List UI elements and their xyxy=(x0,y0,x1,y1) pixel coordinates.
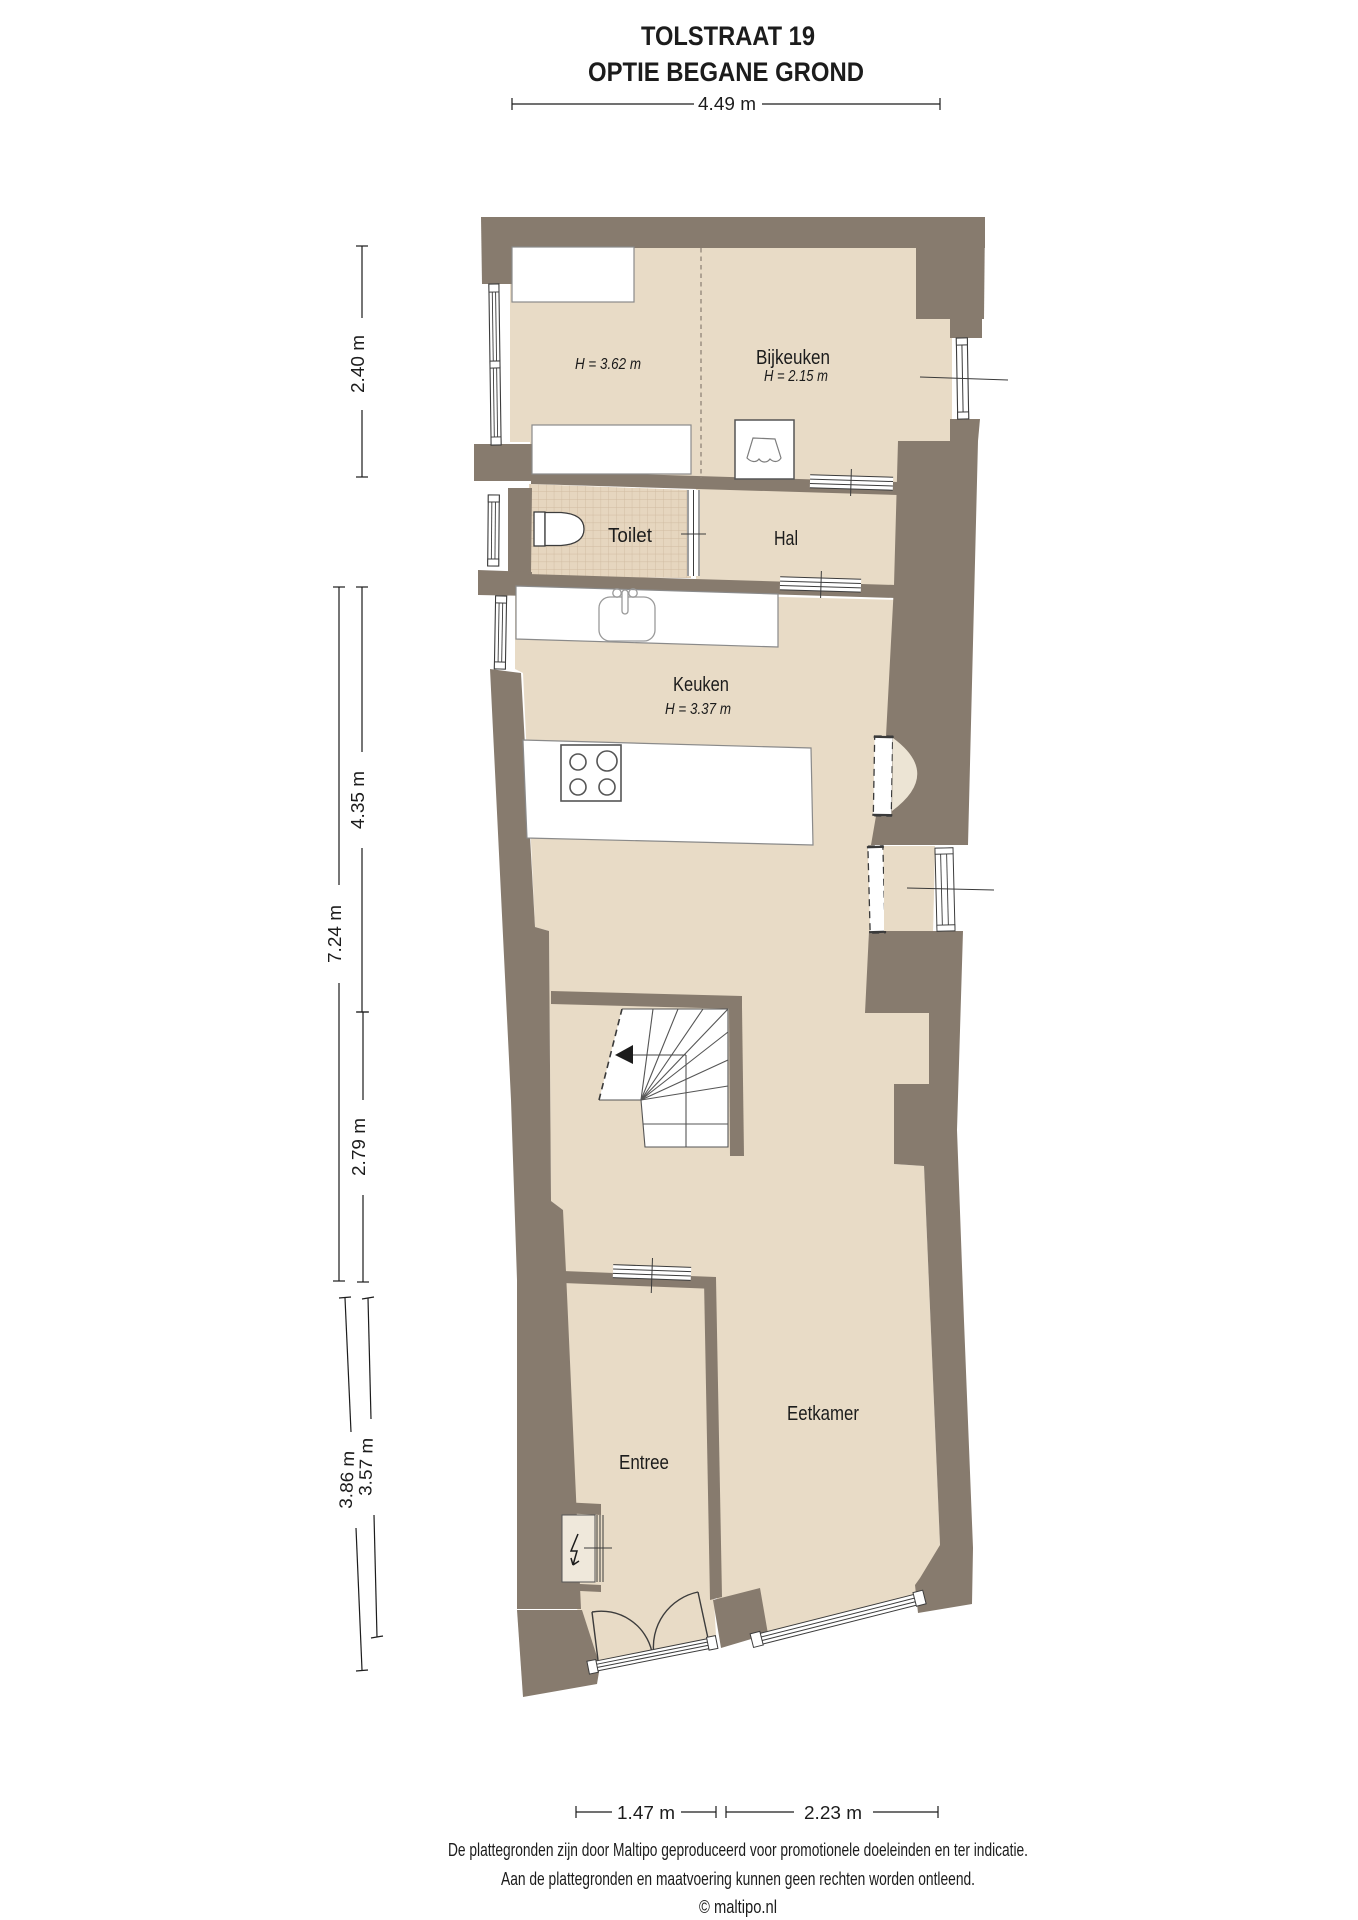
svg-text:H = 2.15 m: H = 2.15 m xyxy=(764,368,828,385)
svg-text:De plattegronden zijn door Mal: De plattegronden zijn door Maltipo gepro… xyxy=(448,1840,1028,1860)
svg-text:Bijkeuken: Bijkeuken xyxy=(756,347,830,369)
svg-text:© maltipo.nl: © maltipo.nl xyxy=(699,1897,777,1917)
svg-text:Keuken: Keuken xyxy=(673,674,729,696)
svg-text:1.47 m: 1.47 m xyxy=(617,1803,675,1823)
svg-text:4.49 m: 4.49 m xyxy=(698,94,756,114)
svg-text:H = 3.37 m: H = 3.37 m xyxy=(665,701,731,718)
svg-text:7.24 m: 7.24 m xyxy=(325,905,345,963)
svg-text:Entree: Entree xyxy=(619,1452,669,1474)
svg-text:TOLSTRAAT 19: TOLSTRAAT 19 xyxy=(641,21,815,51)
svg-text:2.40 m: 2.40 m xyxy=(348,335,368,393)
svg-text:4.35 m: 4.35 m xyxy=(348,771,368,829)
svg-text:Eetkamer: Eetkamer xyxy=(787,1403,859,1425)
svg-text:H = 3.62 m: H = 3.62 m xyxy=(575,356,641,373)
svg-text:2.23 m: 2.23 m xyxy=(804,1803,862,1823)
svg-text:2.79 m: 2.79 m xyxy=(349,1118,369,1176)
svg-text:Hal: Hal xyxy=(774,528,798,550)
svg-text:OPTIE BEGANE GROND: OPTIE BEGANE GROND xyxy=(588,57,864,87)
svg-text:Toilet: Toilet xyxy=(608,525,652,547)
svg-text:3.57 m: 3.57 m xyxy=(355,1438,376,1496)
svg-text:Aan de plattegronden en maatvo: Aan de plattegronden en maatvoering kunn… xyxy=(501,1869,975,1889)
